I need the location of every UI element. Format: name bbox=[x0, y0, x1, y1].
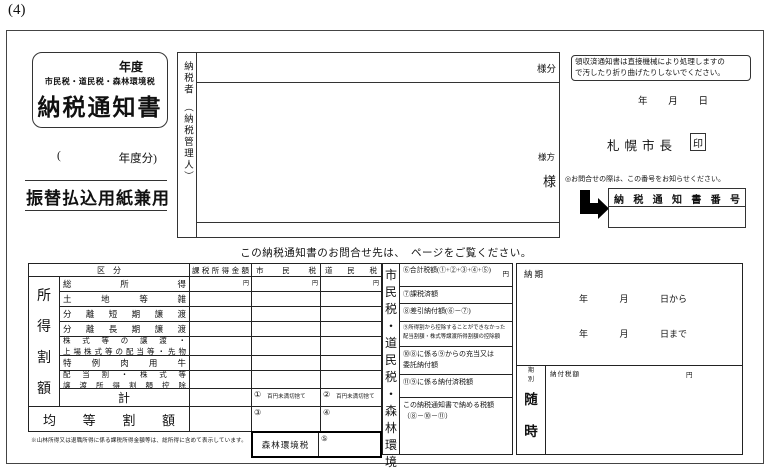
cell-city-long bbox=[252, 322, 321, 337]
cell-taxable-long bbox=[190, 322, 252, 337]
tax-notice-form: (4) 年度 市民税・道民税・森林環境税 納税通知書 ( 年度分) 振替払込用紙… bbox=[0, 0, 772, 470]
cell-taxable-percap bbox=[190, 407, 252, 431]
mayor-label: 札幌市長 bbox=[607, 135, 677, 154]
fiscal-year-paren-open: ( bbox=[57, 150, 61, 166]
cell-city-stocks bbox=[252, 337, 321, 356]
yen-mark: 円 bbox=[243, 278, 249, 287]
notice-title: 納税通知書 bbox=[33, 88, 167, 122]
header-kubun: 区 分 bbox=[29, 264, 190, 277]
inquiry-note: ◎お問合せの際は、この番号をお知らせください。 bbox=[565, 174, 725, 184]
cell-taxable-cattle bbox=[190, 356, 252, 371]
cell-city-cattle bbox=[252, 356, 321, 371]
circled-4: ④ bbox=[323, 408, 330, 417]
circled-1: ① bbox=[254, 390, 261, 399]
forest-tax-box: 森林環境税 ⑤ bbox=[251, 431, 382, 458]
period-to-row: 年 月 日まで bbox=[579, 327, 687, 340]
yen-mark: 円 bbox=[312, 278, 318, 287]
cell-pref-long bbox=[321, 322, 381, 337]
cell-city-gross: 円 bbox=[252, 277, 321, 292]
row-label-long-transfer: 分離長期譲渡 bbox=[60, 322, 190, 337]
cell-taxable-land-misc bbox=[190, 292, 252, 307]
cell-city-land-misc bbox=[252, 292, 321, 307]
cell-taxable-gross: 円 bbox=[190, 277, 252, 292]
summary-row-amount-due: この納税通知書で納める税額 （⑧－⑩－⑪） bbox=[400, 398, 512, 454]
date-month-label: 月 bbox=[668, 93, 678, 107]
rounding-note: 百円未満切捨て bbox=[267, 392, 306, 400]
cell-pref-percap: ④ bbox=[321, 407, 381, 431]
summary-column: ⑥合計税額(①+②+③+④+⑤) 円 ⑦課税済額 ⑧差引納付額(⑥－⑦) ⑨所得… bbox=[399, 263, 513, 455]
taxpayer-side-label: 納税者 （納税管理人） bbox=[180, 61, 194, 237]
page-number-label: (4) bbox=[8, 2, 26, 19]
arrow-right-icon bbox=[577, 190, 609, 223]
tax-category-vertical-strip: 市民税・道民税・森林環境税 bbox=[382, 263, 400, 455]
from-day-label: 日から bbox=[660, 292, 687, 305]
summary-row-appropriation: ⑩⑧に係る⑨からの充当又は 委託納付額 bbox=[400, 347, 512, 375]
machine-notice-line2: で汚したり折り曲げたりしないでください。 bbox=[575, 68, 747, 79]
cell-taxable-dividend bbox=[190, 371, 252, 389]
fiscal-year-label: 年度 bbox=[33, 58, 167, 75]
to-year-label: 年 bbox=[579, 327, 588, 340]
summary-row-balance: ⑧差引納付額(⑥－⑦) bbox=[400, 304, 512, 322]
addressee-main-area: 様方 様 bbox=[197, 83, 559, 222]
payment-amount-label: 納付税額 bbox=[550, 368, 580, 378]
cell-pref-cattle bbox=[321, 356, 381, 371]
cell-city-dividend bbox=[252, 371, 321, 389]
taxpayer-side-label-strip: 納税者 （納税管理人） bbox=[178, 53, 197, 237]
summary-row-total: ⑥合計税額(①+②+③+④+⑤) 円 bbox=[400, 264, 512, 287]
installment-column: 期別 随時 bbox=[517, 366, 546, 454]
machine-notice-line1: 領収済通知書は直接機械により処理しますの bbox=[575, 57, 747, 68]
header-taxable-income: 課税所得金額 bbox=[190, 264, 252, 277]
issue-date-row: 年 月 日 bbox=[638, 93, 708, 107]
cell-pref-stocks bbox=[321, 337, 381, 356]
cell-taxable-stocks bbox=[190, 337, 252, 356]
contact-note: この納税通知書のお問合せ先は、 ページをご覧ください。 bbox=[0, 245, 772, 260]
cell-city-percap: ③ bbox=[252, 407, 321, 431]
cell-taxable-short bbox=[190, 307, 252, 322]
row-label-land-misc: 土地等雑 bbox=[60, 292, 190, 307]
date-day-label: 日 bbox=[698, 93, 708, 107]
rounding-note: 百円未満切捨て bbox=[336, 392, 375, 400]
addressee-top-row: 様分 bbox=[197, 53, 559, 83]
payment-period-label: 納期 bbox=[524, 268, 545, 280]
summary-row-paid-tax: ⑪⑨に係る納付済税額 bbox=[400, 375, 512, 398]
from-year-label: 年 bbox=[579, 292, 588, 305]
notice-number-field bbox=[609, 207, 745, 227]
payment-amount-area: 期別 随時 納付税額 円 bbox=[517, 366, 742, 454]
tax-types-subtitle: 市民税・道民税・森林環境税 bbox=[33, 76, 167, 87]
date-year-label: 年 bbox=[638, 93, 648, 107]
forest-tax-cell: ⑤ bbox=[319, 433, 380, 456]
circled-5: ⑤ bbox=[321, 434, 328, 443]
cell-pref-land-misc bbox=[321, 292, 381, 307]
summary-row-paid: ⑦課税済額 bbox=[400, 287, 512, 304]
installment-header: 期別 bbox=[528, 368, 534, 384]
notice-number-box: 納税通知書番号 bbox=[608, 188, 746, 228]
summary-total-label: ⑥合計税額(①+②+③+④+⑤) bbox=[403, 266, 491, 276]
yen-mark: 円 bbox=[373, 278, 379, 287]
header-city-tax: 市民税 bbox=[252, 264, 321, 277]
income-group-label: 所得割額 bbox=[37, 285, 51, 398]
to-month-label: 月 bbox=[619, 327, 628, 340]
circled-3: ③ bbox=[254, 408, 261, 417]
header-pref-tax: 道民税 bbox=[321, 264, 381, 277]
from-month-label: 月 bbox=[619, 292, 628, 305]
per-capita-label: 均等割額 bbox=[29, 407, 190, 431]
cell-pref-short bbox=[321, 307, 381, 322]
income-group-vertical-label: 所得割額 bbox=[29, 277, 60, 407]
total-row-label: 計 bbox=[60, 389, 190, 407]
payment-box: 納期 年 月 日から 年 月 日まで 期別 随時 納付税額 円 bbox=[516, 263, 743, 455]
cell-city-total: ① 百円未満切捨て bbox=[252, 389, 321, 407]
row-label-stocks: 株式等の譲渡・上場株式等の配当等・先物 bbox=[60, 337, 190, 356]
notice-number-label: 納税通知書番号 bbox=[609, 189, 745, 207]
row-label-cattle: 特例肉用牛 bbox=[60, 356, 190, 371]
cell-pref-gross: 円 bbox=[321, 277, 381, 292]
transfer-payment-label: 振替払込用紙兼用 bbox=[25, 184, 171, 209]
payment-amount-cell: 納付税額 円 bbox=[546, 366, 742, 454]
seal-box: 印 bbox=[690, 133, 706, 151]
rule-line-bottom bbox=[25, 210, 167, 211]
cell-taxable-total bbox=[190, 389, 252, 407]
tax-category-vertical-label: 市民税・道民税・森林環境税 bbox=[383, 266, 399, 452]
period-from-row: 年 月 日から bbox=[579, 292, 687, 305]
fiscal-year-line: ( 年度分) bbox=[57, 150, 157, 166]
sama-kata-label: 様方 bbox=[538, 151, 555, 163]
sama-bun-label: 様分 bbox=[537, 61, 556, 75]
cell-pref-dividend bbox=[321, 371, 381, 389]
rule-line-top bbox=[25, 180, 167, 181]
taxpayer-box: 納税者 （納税管理人） 様分 様方 様 bbox=[177, 52, 560, 238]
cell-pref-total: ② 百円未満切捨て bbox=[321, 389, 381, 407]
anytime-label: 随時 bbox=[524, 388, 538, 440]
row-label-gross-income: 総所得 bbox=[60, 277, 190, 292]
income-tax-table: 区 分 課税所得金額 市民税 道民税 所得割額 総所得 円 円 円 土地等雑 分… bbox=[28, 263, 382, 432]
yen-mark: 円 bbox=[503, 270, 510, 280]
table-footnote: ※山林所得又は退職所得に係る課税所得金額等は、総所得に含めて表示しています。 bbox=[31, 436, 247, 444]
circled-2: ② bbox=[323, 390, 330, 399]
seal-label: 印 bbox=[693, 135, 703, 150]
addressee-area: 様分 様方 様 bbox=[197, 53, 559, 237]
to-day-label: 日まで bbox=[660, 327, 687, 340]
fiscal-year-suffix: 年度分) bbox=[119, 150, 157, 166]
title-box: 年度 市民税・道民税・森林環境税 納税通知書 bbox=[32, 52, 168, 128]
cell-city-short bbox=[252, 307, 321, 322]
summary-row-uncredited: ⑨所得割から控除することができなかった 配当割額・株式等譲渡所得割額の控除額 bbox=[400, 322, 512, 347]
yen-mark: 円 bbox=[686, 369, 693, 379]
machine-notice-box: 領収済通知書は直接機械により処理しますの で汚したり折り曲げたりしないでください… bbox=[571, 55, 751, 81]
payment-period-area: 納期 年 月 日から 年 月 日まで bbox=[517, 264, 742, 366]
addressee-bottom-row bbox=[197, 222, 559, 237]
sama-label: 様 bbox=[543, 171, 556, 190]
forest-tax-label: 森林環境税 bbox=[253, 433, 319, 456]
row-label-short-transfer: 分離短期譲渡 bbox=[60, 307, 190, 322]
row-label-dividend-credit: 配当割・株式等譲渡所得割額控除 bbox=[60, 371, 190, 389]
